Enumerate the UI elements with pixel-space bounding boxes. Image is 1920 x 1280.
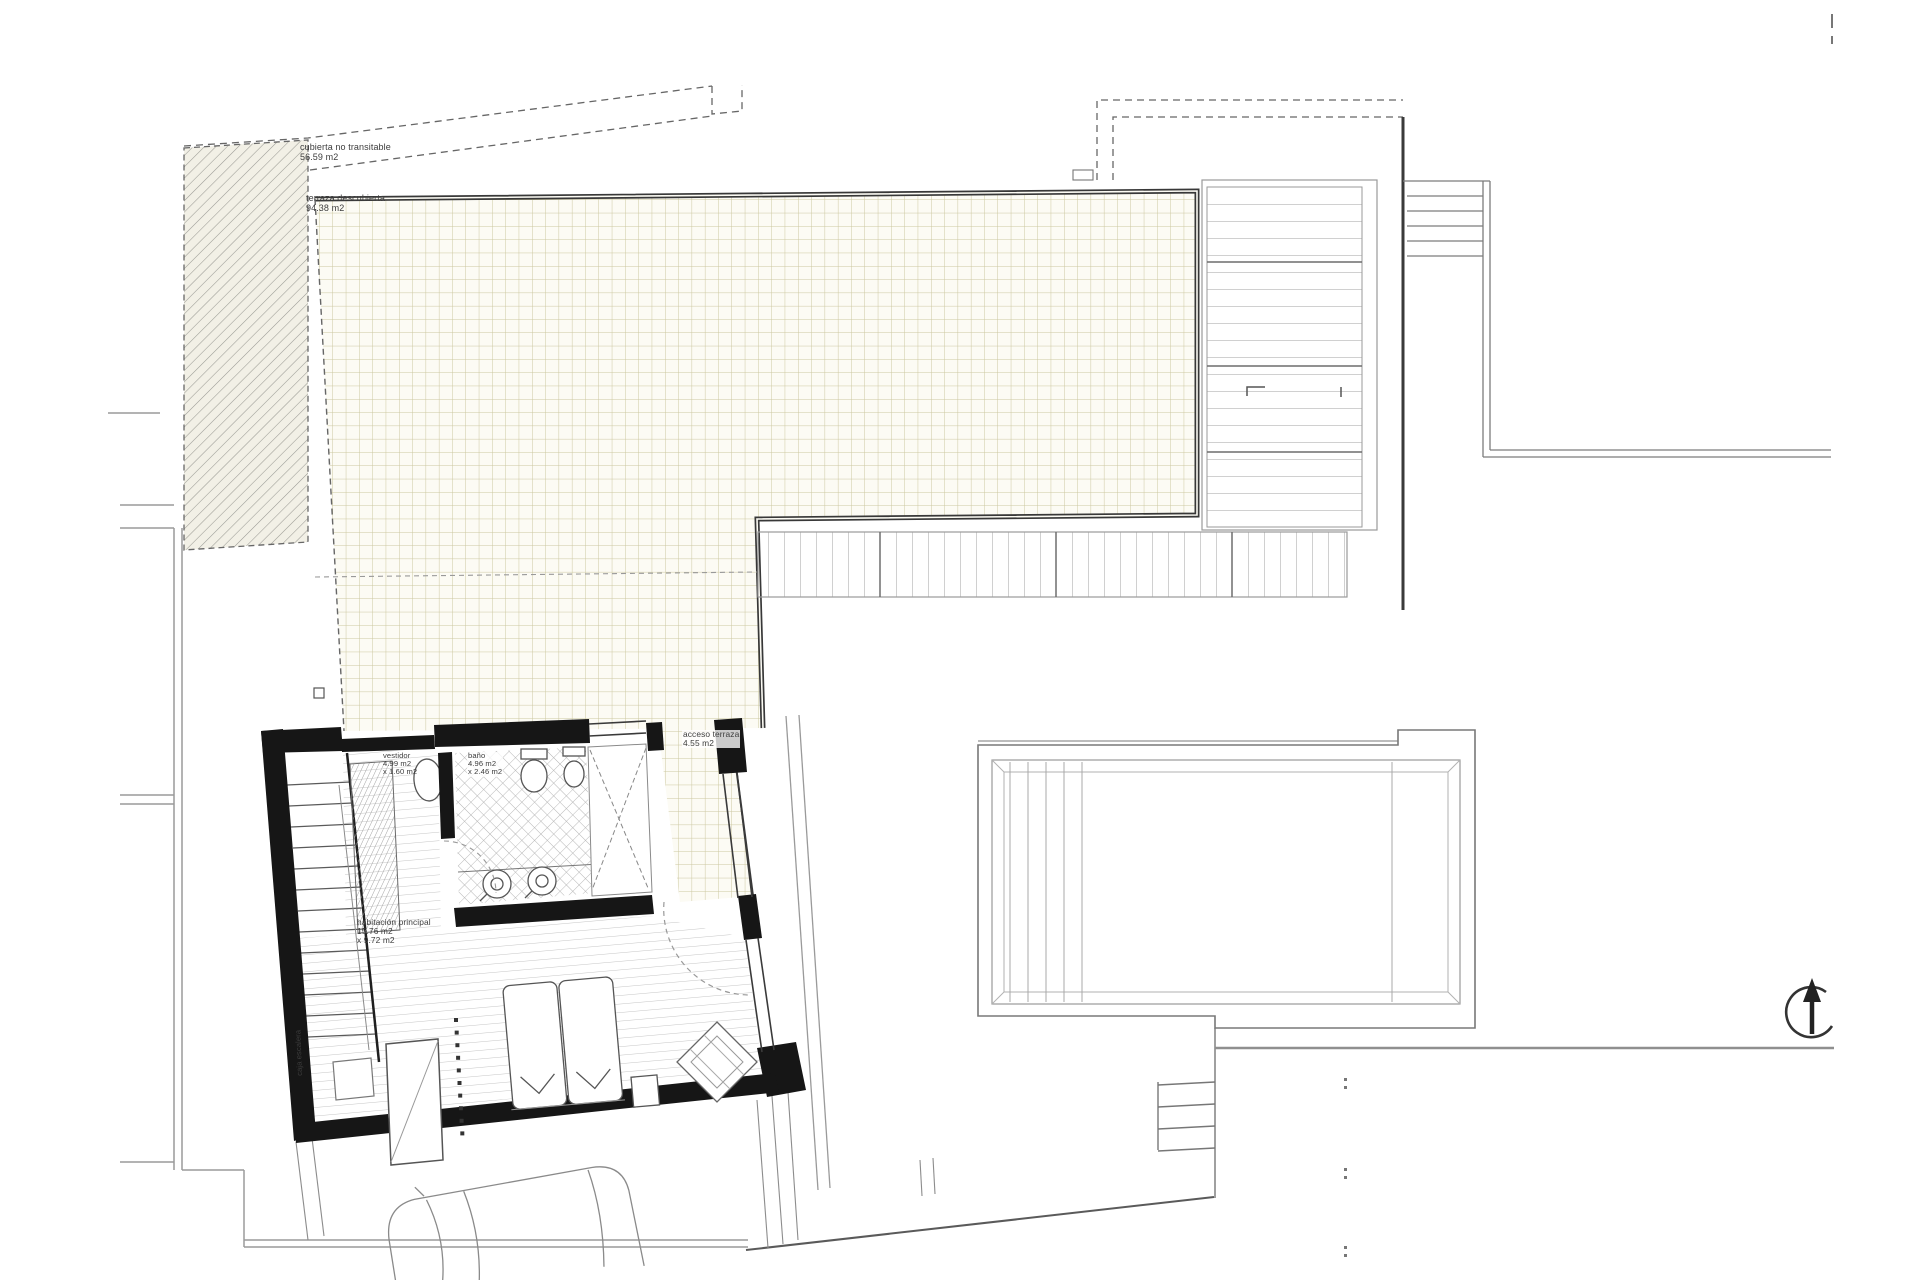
floor-plan-canvas: cubierta no transitable 56.59 m2 terraza… <box>0 0 1920 1280</box>
roof-hatch-area <box>184 140 308 550</box>
label-roof-area: 56.59 m2 <box>300 153 391 163</box>
plan-drawing <box>0 0 1920 1280</box>
label-dressing: vestidor 4.99 m2 x 1.60 m2 <box>383 752 417 777</box>
label-master-bedroom: habitación principal 15.76 m2 x 9.72 m2 <box>357 918 431 945</box>
glass-door-panel <box>386 1039 443 1165</box>
bidet <box>563 747 585 787</box>
lower-floor-edge <box>786 715 830 1190</box>
upper-right-stair <box>1403 181 1831 457</box>
ground-outline <box>746 1197 1214 1250</box>
label-master-bedroom-area2: x 9.72 m2 <box>357 936 431 945</box>
toilet <box>521 749 547 792</box>
reference-ticks <box>1344 14 1833 1257</box>
label-terrace-access-area: 4.55 m2 <box>683 739 739 748</box>
wardrobe <box>350 761 400 933</box>
shower <box>588 744 652 896</box>
car <box>383 1161 644 1280</box>
label-roof: cubierta no transitable 56.59 m2 <box>300 143 391 162</box>
pool <box>978 730 1475 1028</box>
exterior-stair <box>1158 1028 1215 1198</box>
label-bathroom: baño 4.96 m2 x 2.46 m2 <box>467 752 503 777</box>
deck-area <box>1202 180 1377 530</box>
label-dressing-area2: x 1.60 m2 <box>383 768 417 776</box>
label-terrace-access: acceso terraza 4.55 m2 <box>682 730 740 748</box>
nightstand <box>631 1075 660 1107</box>
label-terrace: terraza descubierta 94.38 m2 <box>306 194 385 213</box>
slat-band <box>758 532 1347 597</box>
stair-bottom-landing <box>333 1058 374 1100</box>
label-stair-shaft-name: caja escalera <box>294 1030 304 1076</box>
roof-dashed-outline <box>1097 100 1403 180</box>
label-stair-shaft: caja escalera <box>294 1030 304 1076</box>
label-terrace-area: 94.38 m2 <box>306 204 385 214</box>
label-bathroom-area2: x 2.46 m2 <box>468 768 502 776</box>
north-arrow-icon <box>1786 978 1832 1037</box>
terrace-area <box>314 170 1197 731</box>
